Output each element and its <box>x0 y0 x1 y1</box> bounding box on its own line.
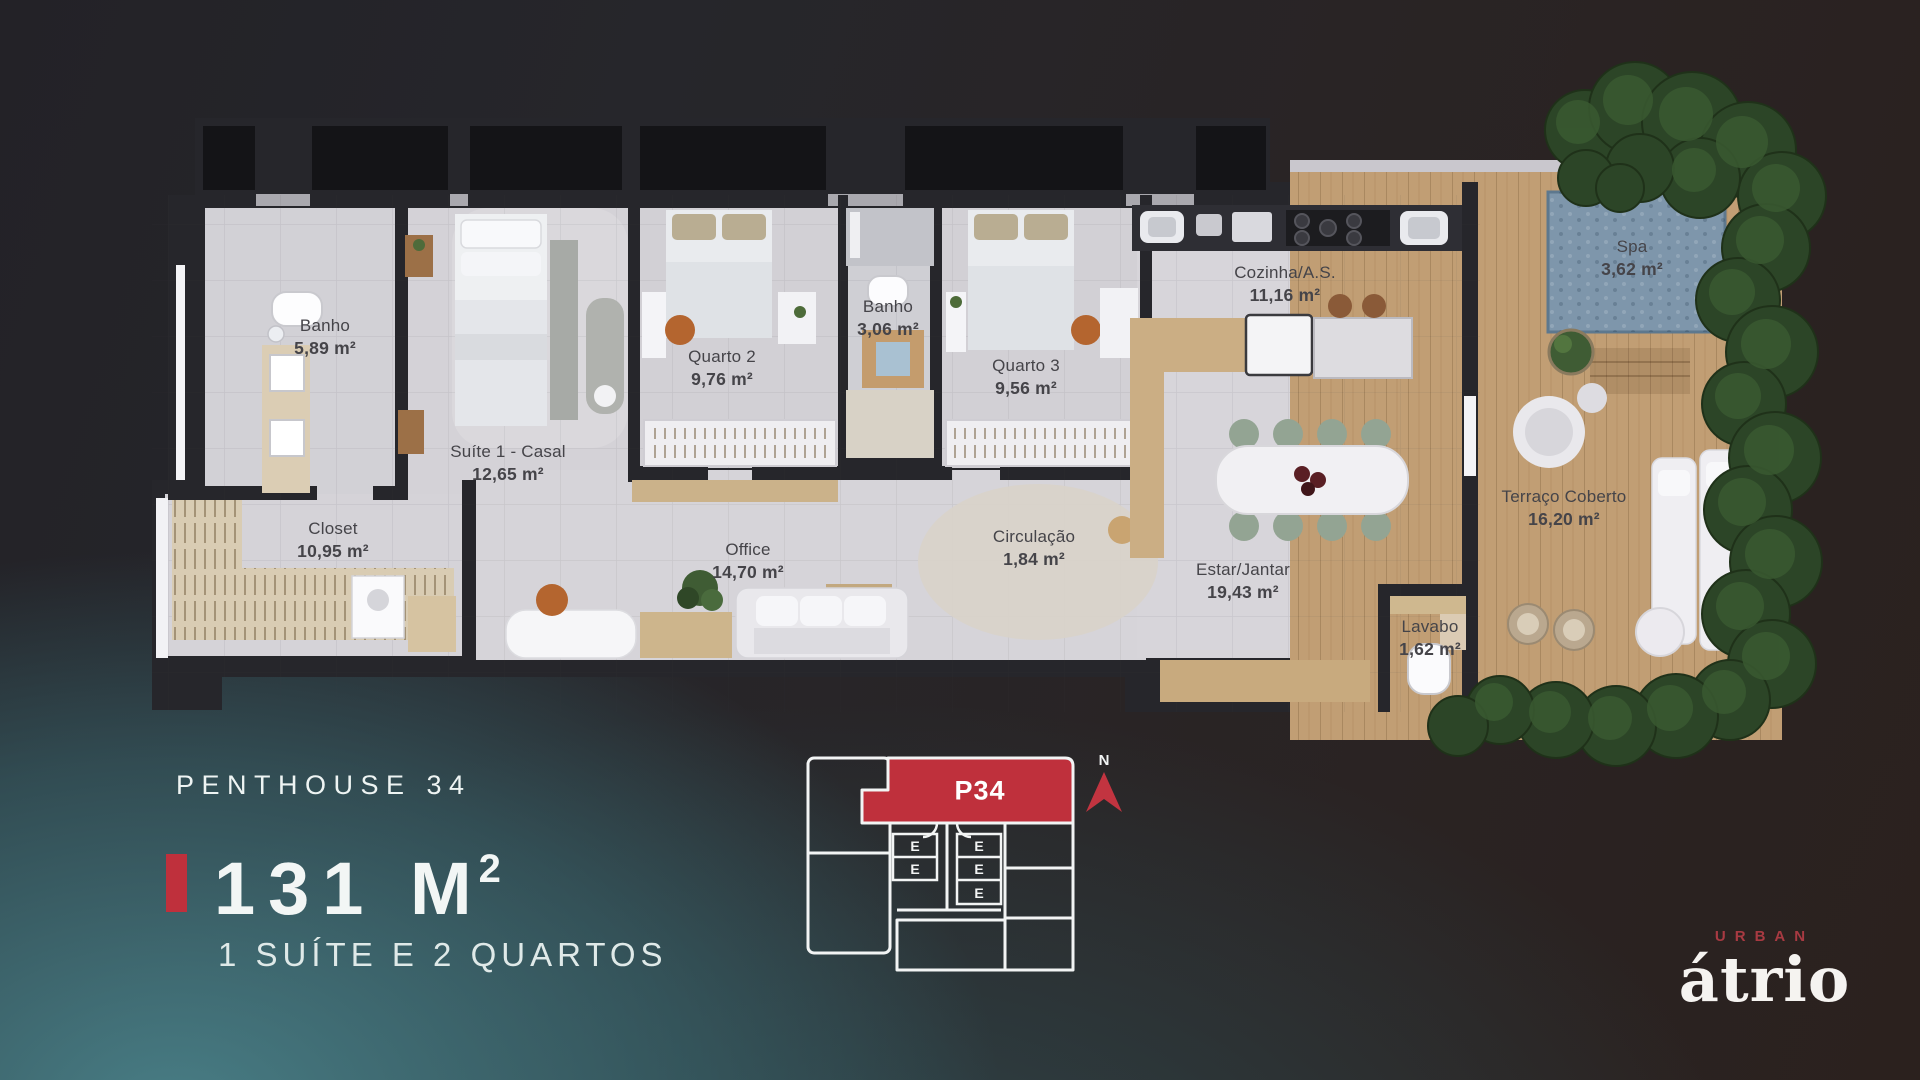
elevator-label: E <box>910 838 919 854</box>
elevator-label: E <box>974 885 983 901</box>
room-name: Office <box>712 539 784 561</box>
room-area: 10,95 m² <box>297 540 369 562</box>
elevator-label: E <box>974 838 983 854</box>
top-window-boxes <box>203 126 1266 190</box>
page-title: PENTHOUSE 34 <box>176 770 472 801</box>
label-spa: Spa 3,62 m² <box>1601 236 1663 280</box>
label-office: Office 14,70 m² <box>712 539 784 583</box>
room-area: 3,62 m² <box>1601 258 1663 280</box>
room-area: 14,70 m² <box>712 561 784 583</box>
label-cozinha: Cozinha/A.S. 11,16 m² <box>1234 262 1336 306</box>
room-name: Estar/Jantar <box>1196 559 1290 581</box>
room-area: 19,43 m² <box>1196 581 1290 603</box>
room-area: 5,89 m² <box>294 337 356 359</box>
label-quarto3: Quarto 3 9,56 m² <box>992 355 1060 399</box>
unit-area: 131 M2 <box>214 846 501 931</box>
elevator-label: E <box>974 861 983 877</box>
page: Banho 5,89 m² Suíte 1 - Casal 12,65 m² C… <box>0 0 1920 1080</box>
brand-name-label: átrio <box>1662 947 1867 1012</box>
north-label: N <box>1099 752 1110 769</box>
unit-area-sup: 2 <box>479 847 501 891</box>
room-name: Cozinha/A.S. <box>1234 262 1336 284</box>
room-name: Circulação <box>993 526 1075 548</box>
label-estar: Estar/Jantar 19,43 m² <box>1196 559 1290 603</box>
brand-logo: URBAN átrio <box>1662 928 1867 1012</box>
label-banho-social: Banho 3,06 m² <box>857 296 919 340</box>
room-name: Lavabo <box>1399 616 1461 638</box>
label-lavabo: Lavabo 1,62 m² <box>1399 616 1461 660</box>
room-area: 3,06 m² <box>857 318 919 340</box>
room-name: Banho <box>857 296 919 318</box>
label-banho-suite: Banho 5,89 m² <box>294 315 356 359</box>
label-suite: Suíte 1 - Casal 12,65 m² <box>450 441 565 485</box>
room-name: Spa <box>1601 236 1663 258</box>
elevator-label: E <box>910 861 919 877</box>
room-area: 1,62 m² <box>1399 638 1461 660</box>
keyplan-unit-label: P34 <box>954 776 1005 807</box>
room-name: Quarto 2 <box>688 346 756 368</box>
label-closet: Closet 10,95 m² <box>297 518 369 562</box>
keyplan: E E E E E <box>798 750 1088 982</box>
unit-area-value: 131 M <box>214 847 485 930</box>
north-arrow-icon: N <box>1082 748 1130 818</box>
label-terraco: Terraço Coberto 16,20 m² <box>1502 486 1627 530</box>
unit-subtitle: 1 SUÍTE E 2 QUARTOS <box>218 936 668 974</box>
room-area: 16,20 m² <box>1502 508 1627 530</box>
label-quarto2: Quarto 2 9,76 m² <box>688 346 756 390</box>
room-name: Suíte 1 - Casal <box>450 441 565 463</box>
accent-bar <box>166 854 187 912</box>
room-name: Terraço Coberto <box>1502 486 1627 508</box>
room-area: 12,65 m² <box>450 463 565 485</box>
room-name: Quarto 3 <box>992 355 1060 377</box>
label-circulacao: Circulação 1,84 m² <box>993 526 1075 570</box>
room-name: Closet <box>297 518 369 540</box>
room-name: Banho <box>294 315 356 337</box>
room-area: 9,56 m² <box>992 377 1060 399</box>
room-area: 11,16 m² <box>1234 284 1336 306</box>
room-area: 1,84 m² <box>993 548 1075 570</box>
room-area: 9,76 m² <box>688 368 756 390</box>
sofa <box>736 588 908 658</box>
